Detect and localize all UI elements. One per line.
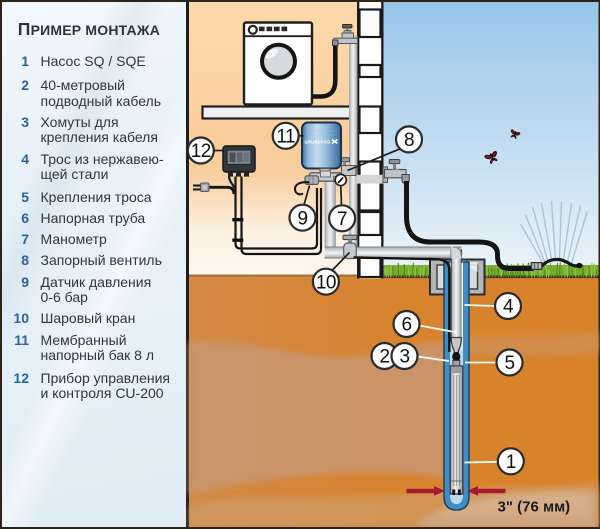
svg-text:12: 12 <box>190 141 210 162</box>
svg-text:GRUNDFOS: GRUNDFOS <box>304 139 330 144</box>
svg-text:7: 7 <box>337 209 347 230</box>
svg-text:9: 9 <box>297 208 307 229</box>
svg-text:8: 8 <box>403 130 413 151</box>
svg-text:5: 5 <box>504 353 514 374</box>
svg-text:1: 1 <box>505 452 515 473</box>
svg-text:6: 6 <box>401 315 411 336</box>
svg-text:3" (76 мм): 3" (76 мм) <box>497 499 570 516</box>
svg-text:10: 10 <box>315 272 335 293</box>
svg-text:4: 4 <box>502 297 513 318</box>
svg-text:11: 11 <box>276 126 295 147</box>
svg-text:3: 3 <box>399 347 409 368</box>
svg-text:2: 2 <box>379 347 389 368</box>
